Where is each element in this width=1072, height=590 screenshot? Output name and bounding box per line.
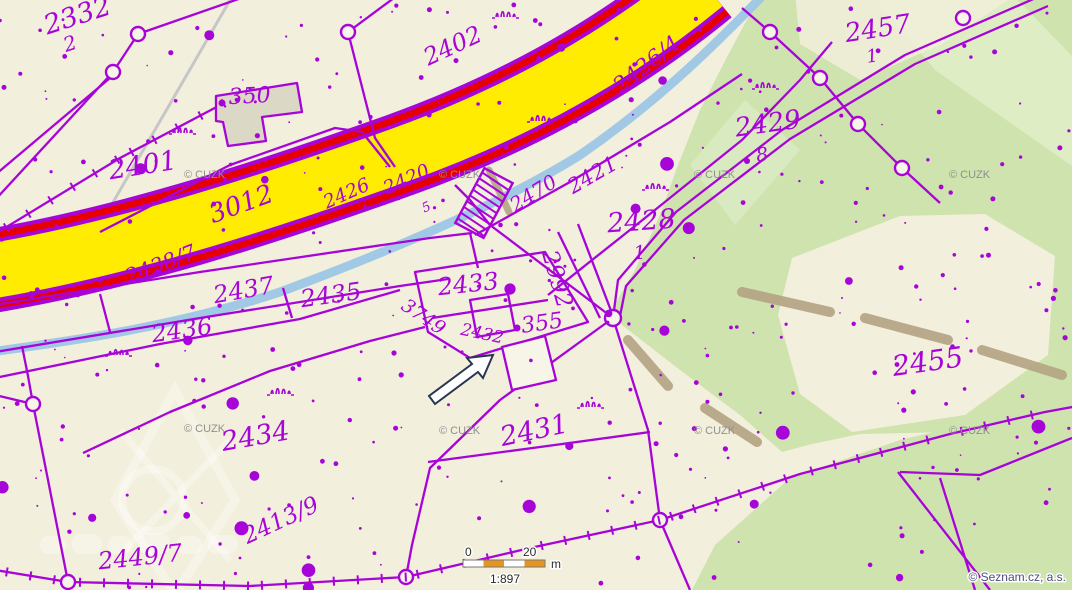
cuzk-watermark: © CUZK: [694, 425, 736, 437]
cadastral-map-viewport[interactable]: 2332 2 2402 350 2401 2438/7 2426 2420 5 …: [0, 0, 1072, 590]
building-under-arrow: [502, 336, 556, 390]
cuzk-watermark: © CUZK: [694, 169, 736, 181]
building-label: 350: [228, 83, 271, 110]
cuzk-watermark: © CUZK: [184, 423, 226, 435]
scale-unit-label: m: [551, 557, 561, 571]
scale-start-label: 0: [465, 545, 472, 559]
scale-ratio-label: 1:897: [490, 572, 520, 586]
parcel-sublabel: 1: [633, 242, 647, 265]
cadastral-map-canvas[interactable]: 2332 2 2402 350 2401 2438/7 2426 2420 5 …: [0, 0, 1072, 590]
cuzk-watermark: © CUZK: [439, 169, 481, 181]
parcel-label: 2428: [605, 204, 677, 240]
cuzk-watermark: © CUZK: [439, 425, 481, 437]
seznam-attribution: © Seznam.cz, a.s.: [968, 570, 1066, 584]
scale-bar-segments: [463, 560, 545, 567]
cuzk-watermark: © CUZK: [949, 169, 991, 181]
cuzk-watermark: © CUZK: [949, 425, 991, 437]
cuzk-watermark: © CUZK: [184, 169, 226, 181]
scale-end-label: 20: [523, 545, 537, 559]
